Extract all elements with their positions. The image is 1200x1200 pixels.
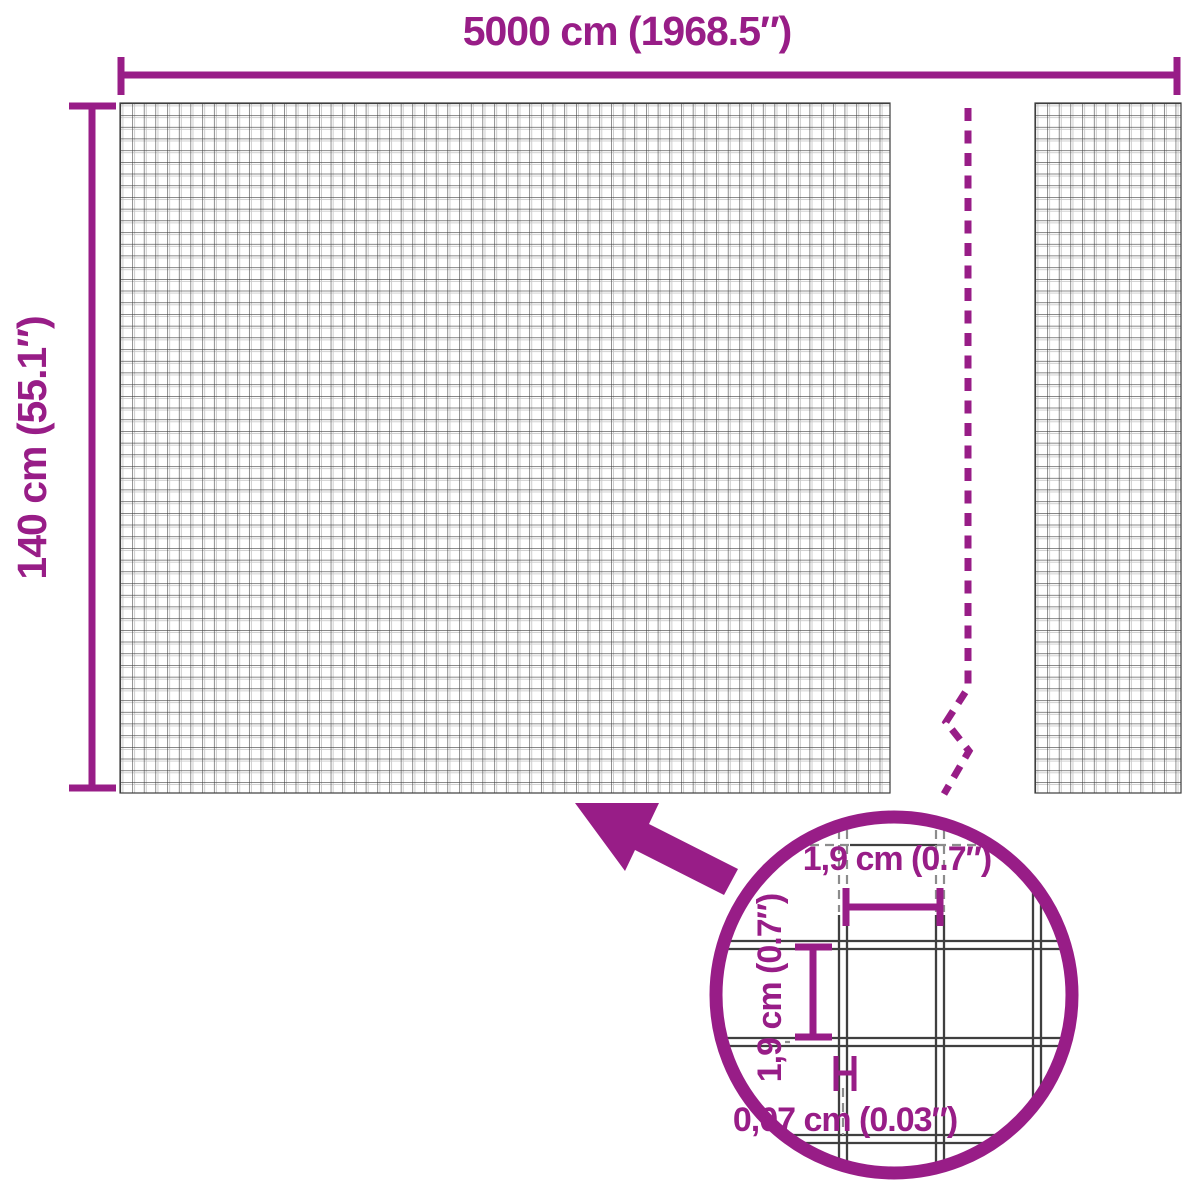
mesh-panel-left — [120, 103, 890, 793]
width-dimension-label: 5000 cm (1968.5″) — [463, 8, 792, 54]
zoom-arrow-icon — [575, 803, 738, 895]
height-dimension-label: 140 cm (55.1″) — [9, 316, 55, 579]
product-dimension-diagram: 5000 cm (1968.5″) 140 cm (55.1″) — [0, 0, 1200, 1200]
wire-thickness-label: 0,07 cm (0.03″) — [733, 1101, 957, 1139]
panel-break-line — [944, 108, 969, 794]
mesh-width-label: 1,9 cm (0.7″) — [803, 840, 992, 878]
mesh-height-label: 1,9 cm (0.7″) — [751, 894, 789, 1083]
mesh-panel-right — [1035, 103, 1181, 793]
width-dimension — [121, 57, 1177, 95]
height-dimension — [69, 105, 116, 789]
